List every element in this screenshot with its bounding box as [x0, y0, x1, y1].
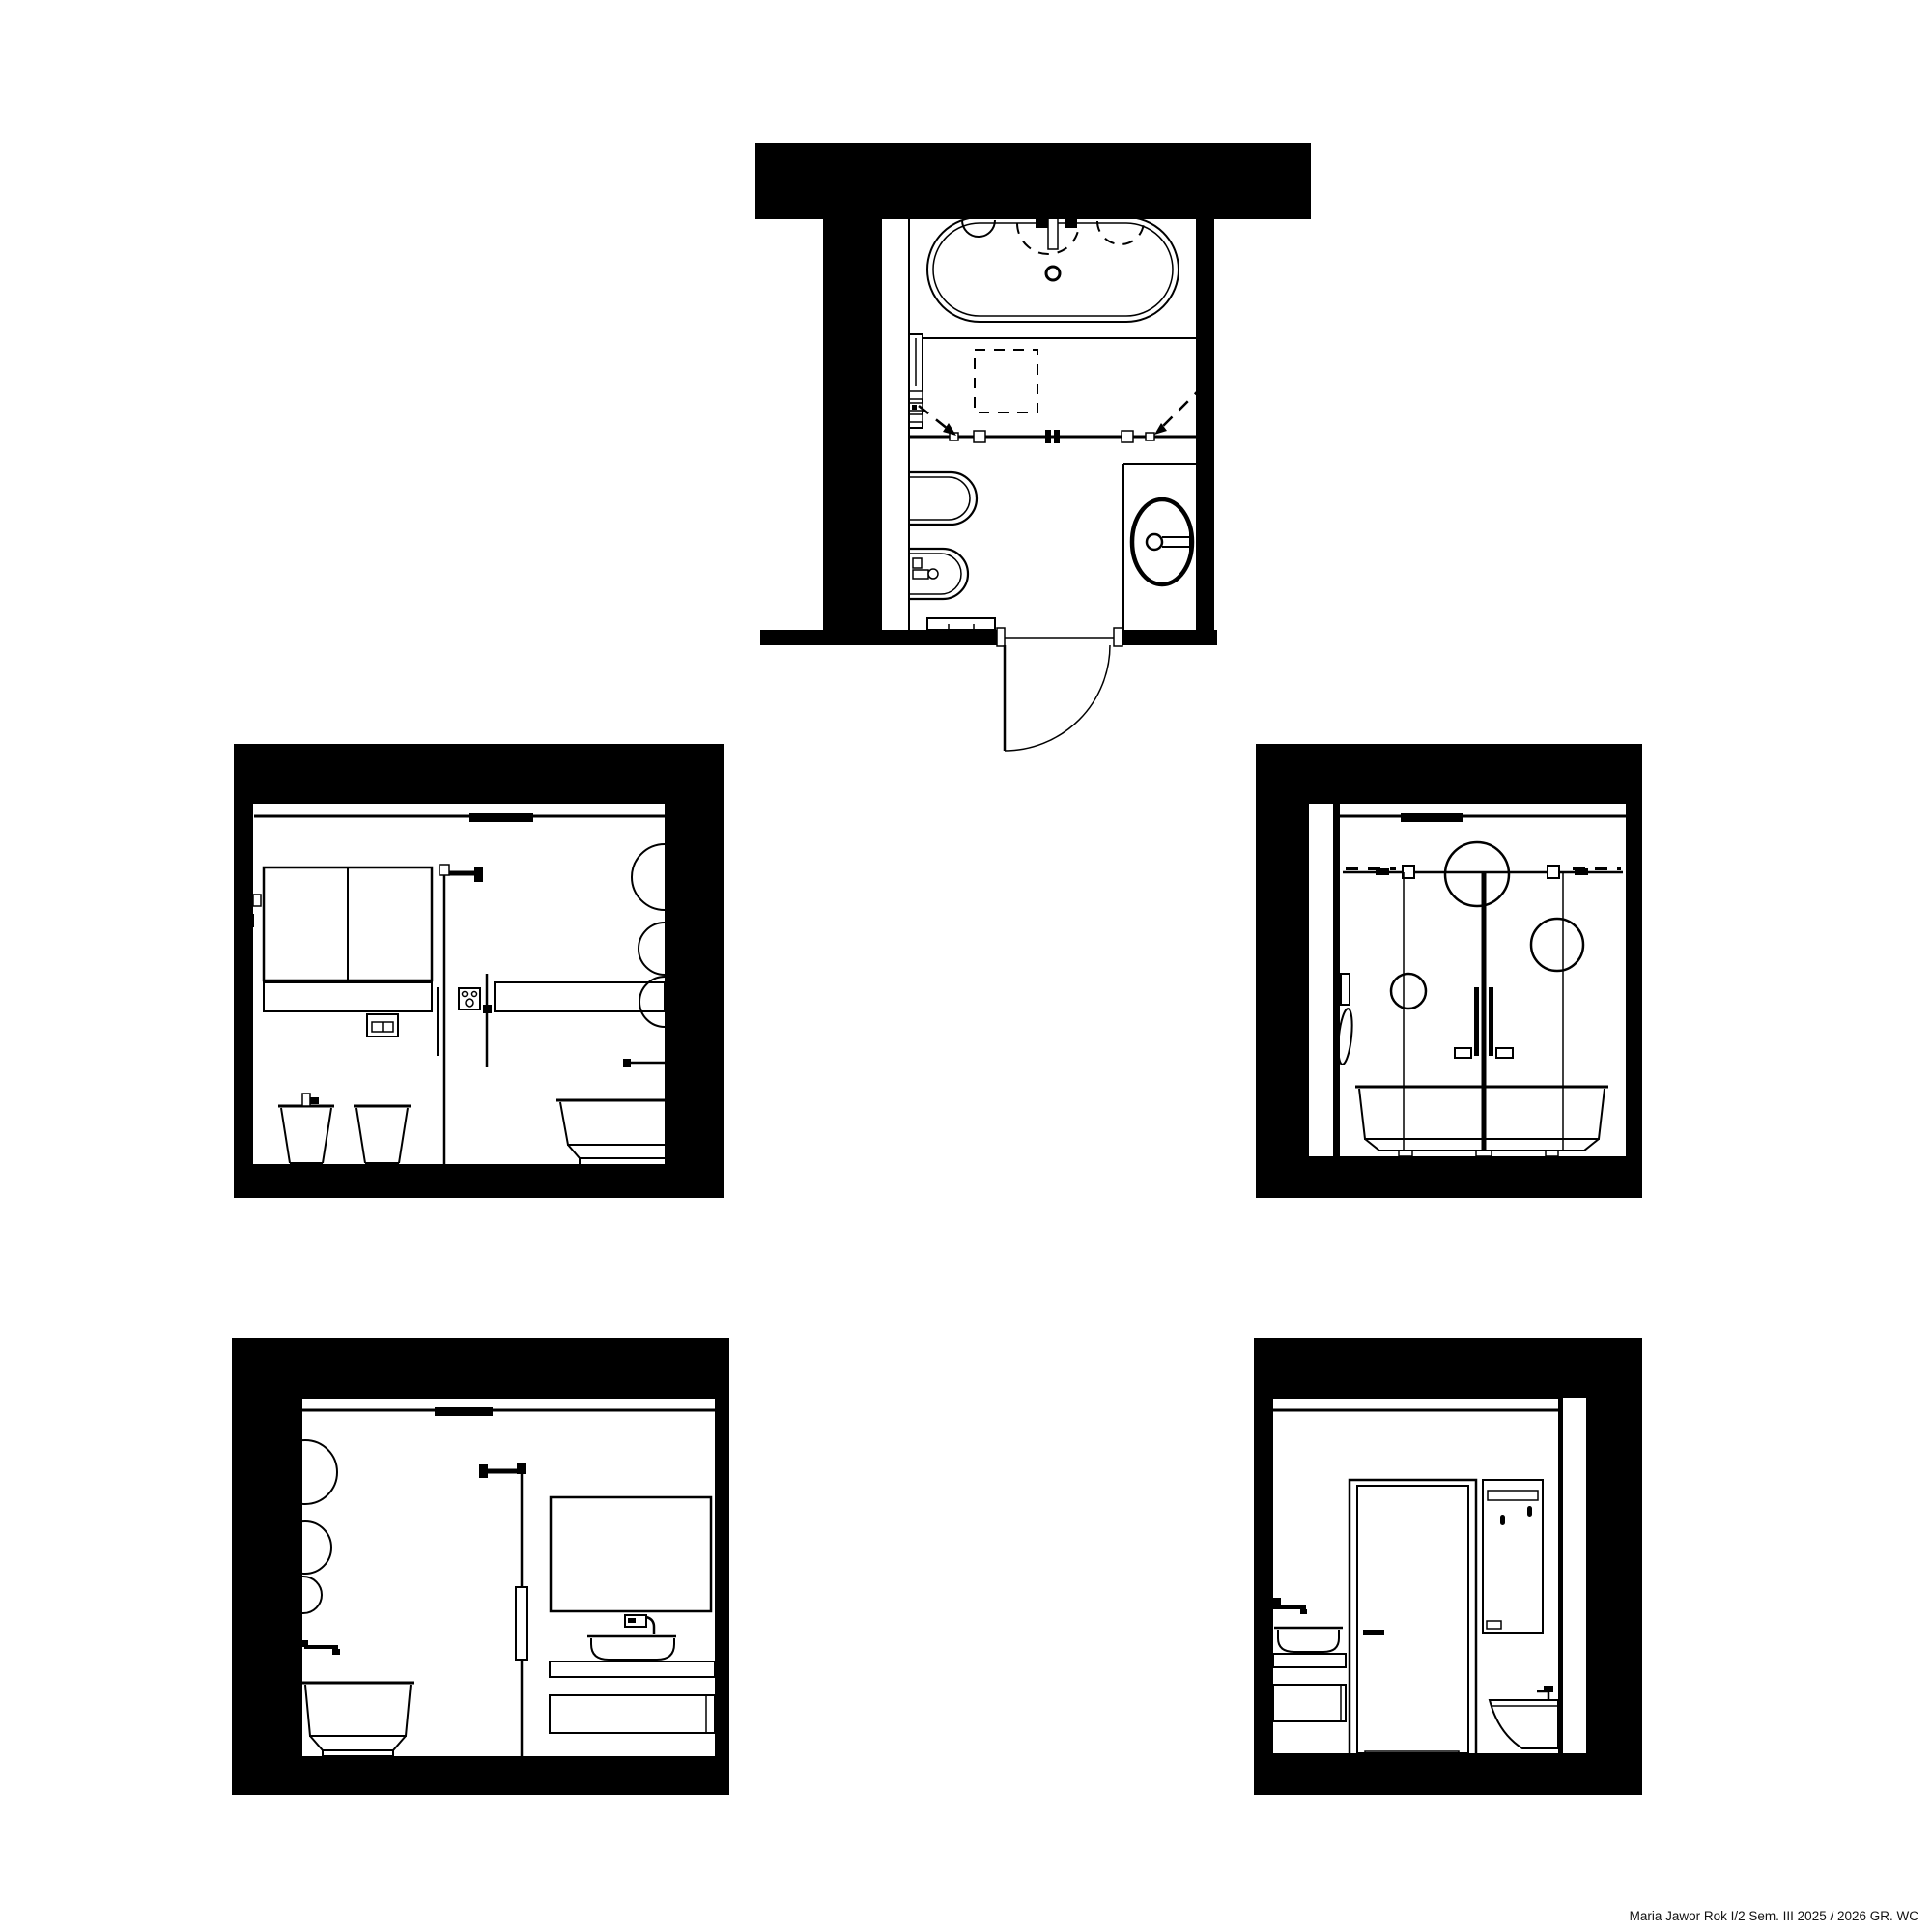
- architectural-drawing-sheet: Maria Jawor Rok I/2 Sem. III 2025 / 2026…: [0, 0, 1932, 1932]
- shower-control-icon: [459, 988, 480, 1009]
- hook-icon: [1527, 1506, 1532, 1517]
- elevation-middle-right-panel: [1256, 744, 1642, 1198]
- elevation-bottom-left-panel: [232, 1338, 729, 1795]
- bidet-plan: [909, 549, 968, 599]
- door-handle-icon: [1363, 1630, 1384, 1635]
- radiator-plan: [927, 618, 995, 630]
- ceiling-light-icon: [435, 1407, 493, 1416]
- door-handle-bar: [1489, 987, 1493, 1056]
- door-handle-bar: [1474, 987, 1479, 1056]
- elevation-middle-left-panel: [234, 744, 724, 1198]
- shower-area-plan: [909, 334, 1204, 443]
- bath-faucet-icon: [1036, 214, 1077, 249]
- shower-drain-icon: [975, 350, 1037, 412]
- drawing-canvas: [0, 0, 1932, 1932]
- title-block-text: Maria Jawor Rok I/2 Sem. III 2025 / 2026…: [1630, 1910, 1918, 1923]
- shower-panel-plan: [909, 334, 923, 428]
- floor-plan-panel: [755, 143, 1311, 751]
- bathtub-plan: [927, 214, 1179, 322]
- plan-walls: [755, 143, 1311, 646]
- glass-partition-plan: [909, 385, 1204, 443]
- toilet-plan: [909, 472, 977, 525]
- hook-icon: [1500, 1515, 1505, 1525]
- ceiling-light-icon: [469, 813, 533, 822]
- elevation-bottom-right-panel: [1254, 1338, 1642, 1795]
- ceiling-light-icon: [1401, 813, 1463, 822]
- washbasin-plan: [1123, 464, 1196, 630]
- entry-door-plan: [1005, 638, 1114, 751]
- glass-handle-bar: [516, 1587, 527, 1660]
- wall-hook-icon: [253, 895, 261, 906]
